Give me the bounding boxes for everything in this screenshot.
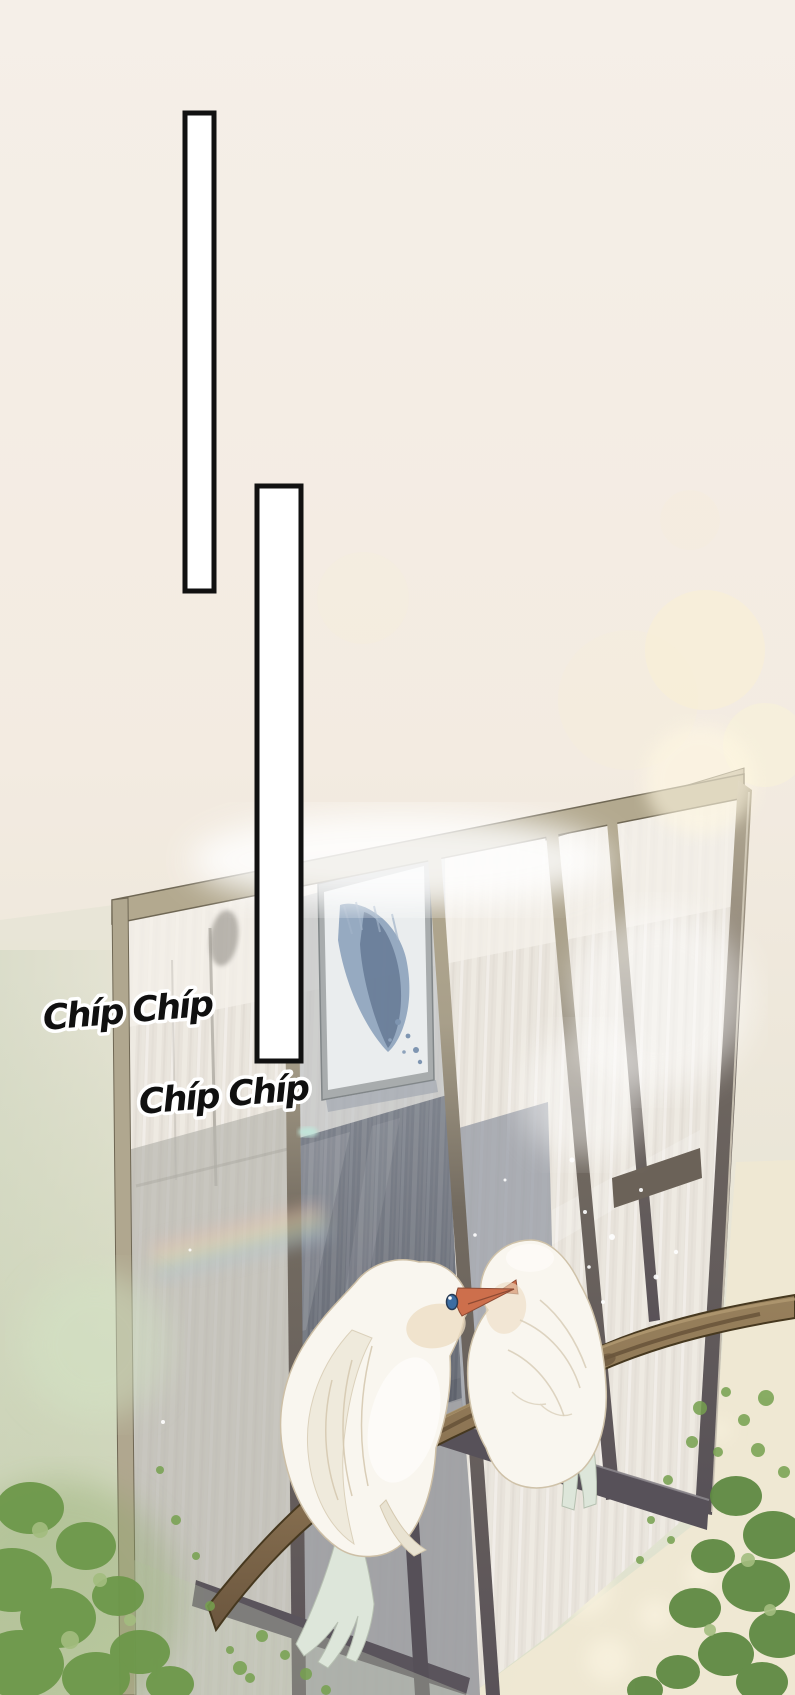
speech-bar-2 [257, 486, 301, 1061]
comic-panel: Chíp Chíp Chíp Chíp [0, 0, 795, 1695]
green-glow [20, 1270, 170, 1420]
cyan-glint [298, 1127, 318, 1137]
speech-bar-1 [185, 113, 214, 591]
comic-panel-art: Chíp Chíp Chíp Chíp [0, 0, 795, 1695]
bird-left-eye [447, 1295, 458, 1310]
